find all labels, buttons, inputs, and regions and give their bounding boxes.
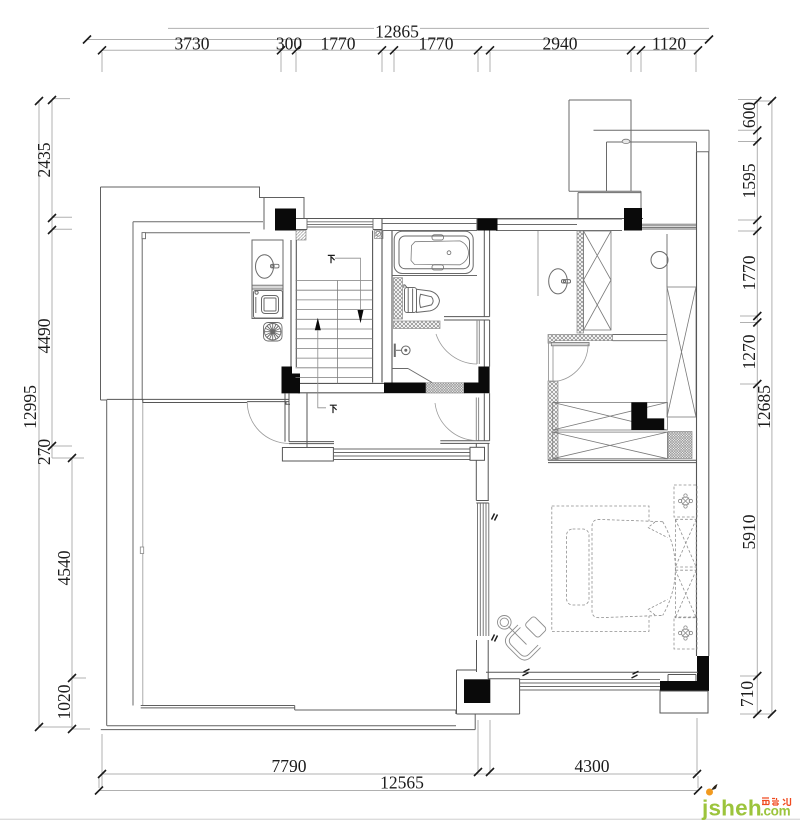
svg-text:.com: .com: [760, 804, 791, 819]
svg-text:600: 600: [739, 102, 759, 129]
svg-text:1270: 1270: [739, 334, 759, 369]
svg-text:300: 300: [276, 34, 303, 54]
svg-text:1595: 1595: [739, 163, 759, 198]
svg-text:4490: 4490: [34, 318, 54, 353]
svg-text:1770: 1770: [321, 34, 356, 54]
svg-text:4540: 4540: [54, 550, 74, 585]
svg-text:2435: 2435: [34, 142, 54, 177]
svg-text:2940: 2940: [543, 34, 578, 54]
svg-text:710: 710: [737, 681, 757, 708]
svg-text:jsheh: jsheh: [701, 796, 762, 820]
svg-text:5910: 5910: [739, 514, 759, 549]
svg-text:12995: 12995: [20, 385, 40, 429]
svg-text:1020: 1020: [54, 684, 74, 719]
svg-text:12565: 12565: [380, 773, 424, 793]
svg-text:1770: 1770: [739, 255, 759, 290]
svg-text:7790: 7790: [272, 756, 307, 776]
svg-text:270: 270: [34, 439, 54, 466]
svg-text:12865: 12865: [375, 22, 419, 42]
svg-text:1120: 1120: [652, 34, 687, 54]
svg-text:1770: 1770: [419, 34, 454, 54]
svg-text:4300: 4300: [575, 756, 610, 776]
svg-text:3730: 3730: [175, 34, 210, 54]
svg-text:12685: 12685: [754, 385, 774, 429]
